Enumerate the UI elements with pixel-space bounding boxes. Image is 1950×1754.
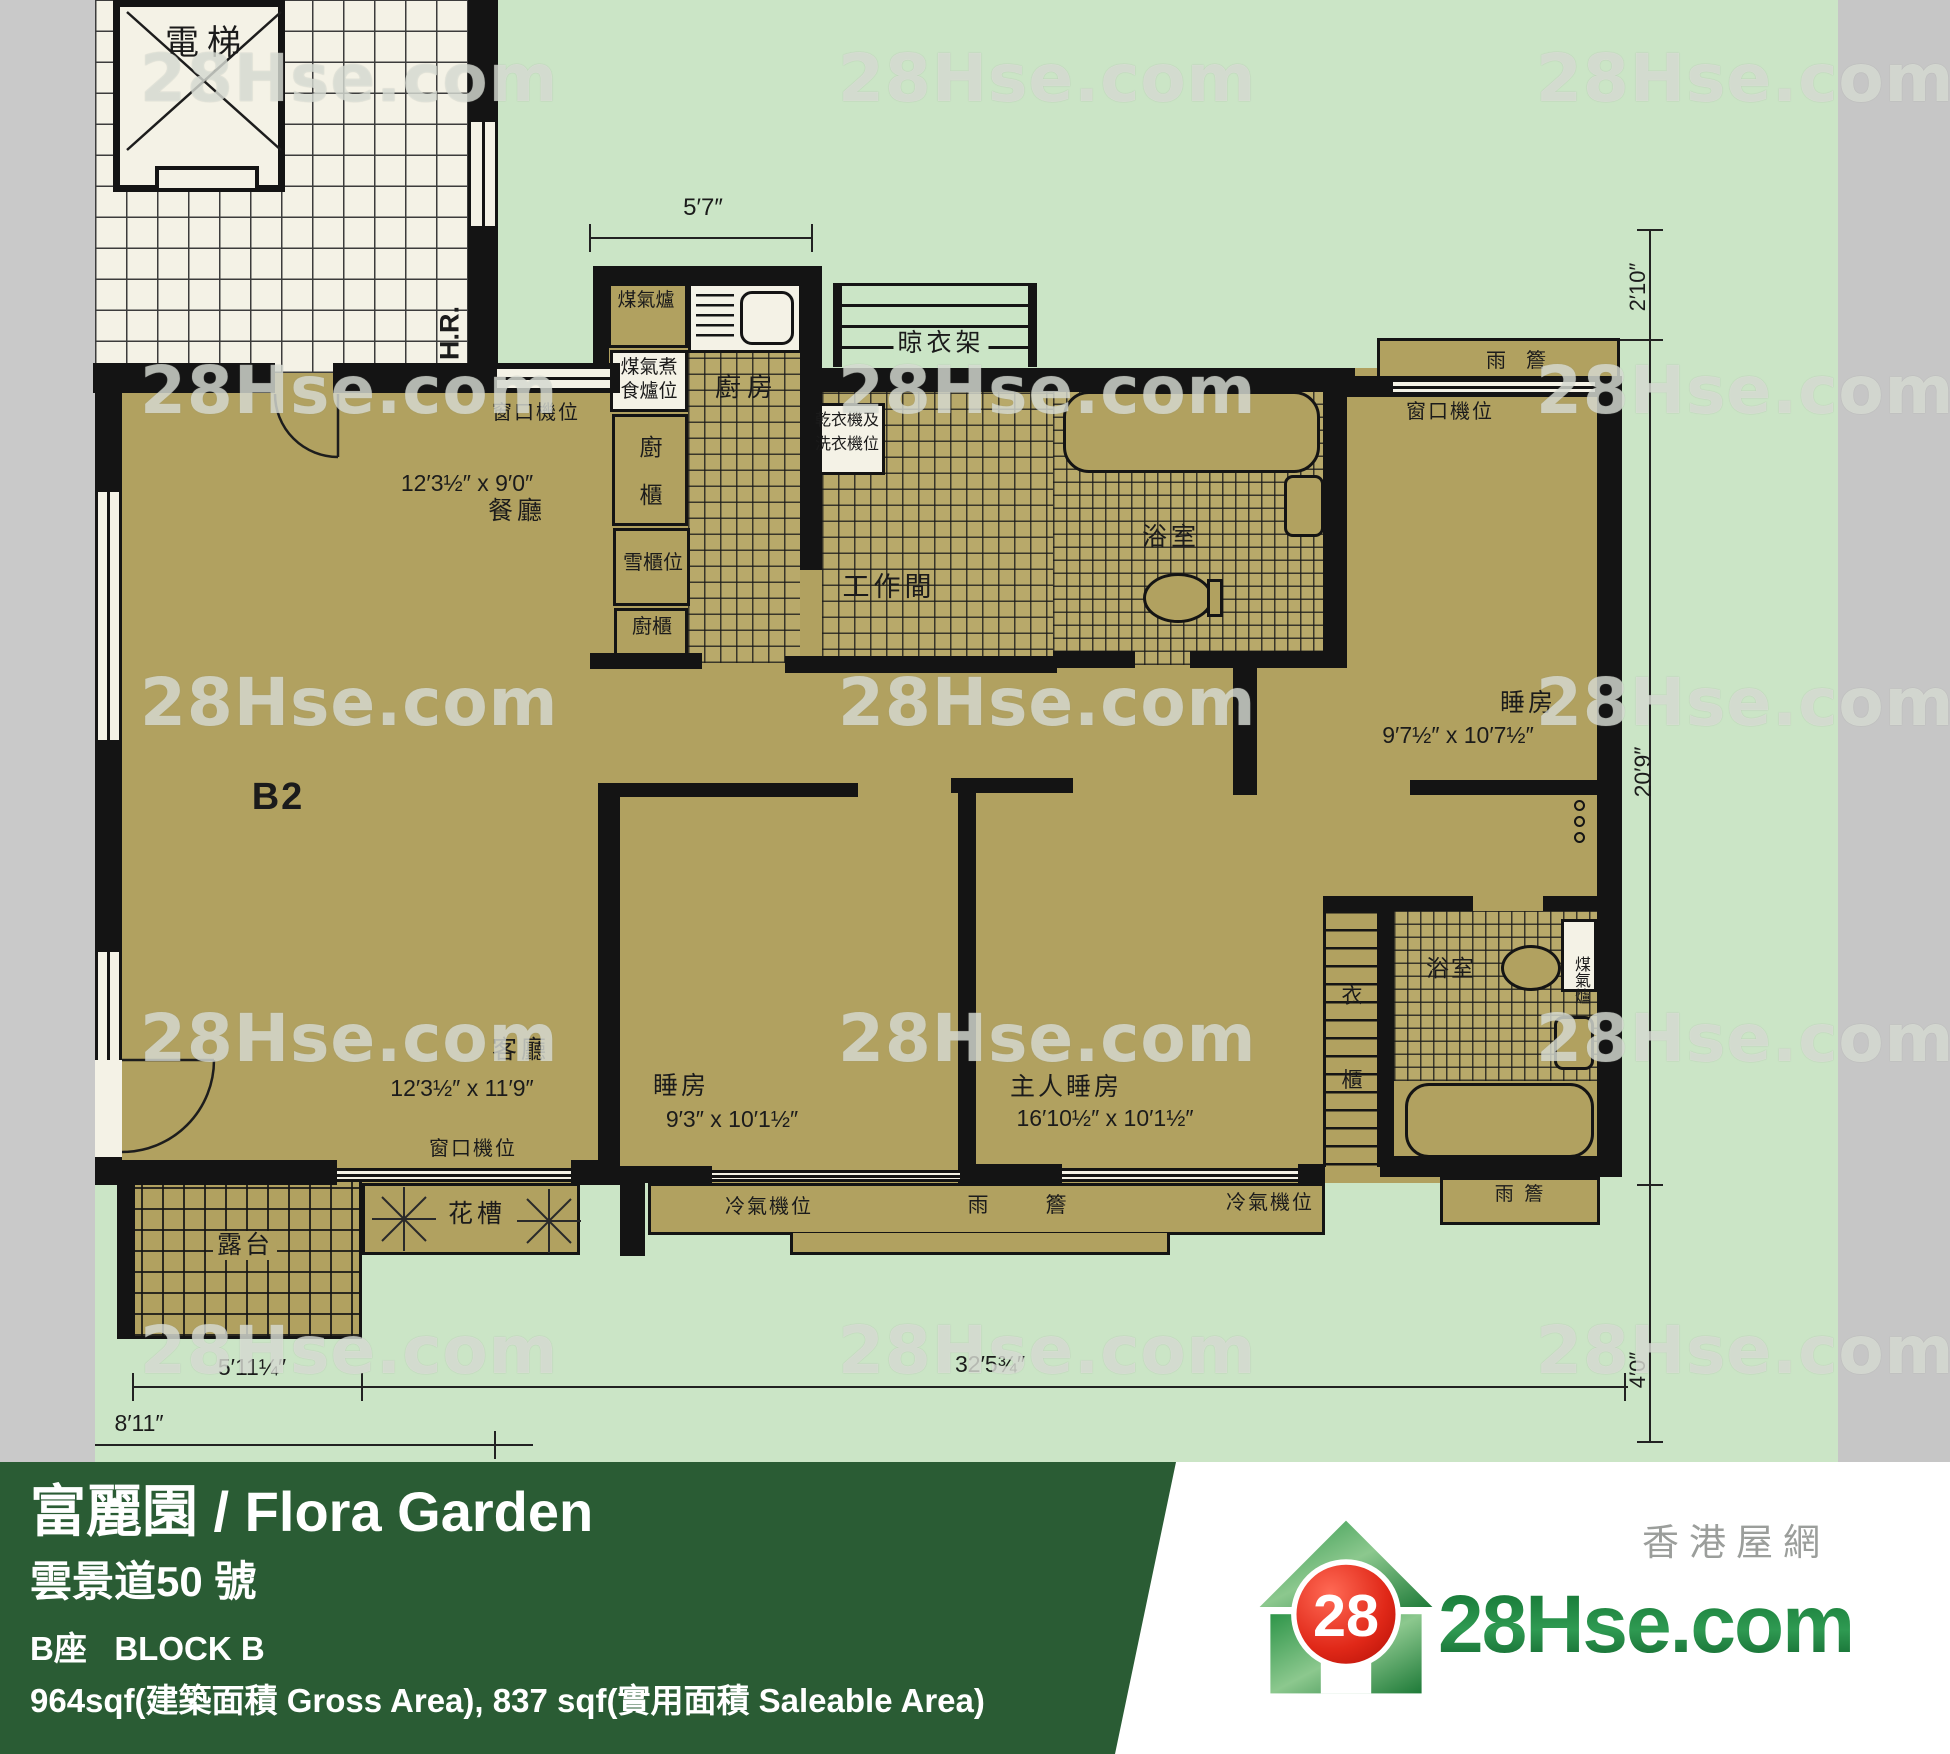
wardrobe-label-char1: 衣: [1342, 986, 1363, 1007]
bathroom2-label: 浴室: [1426, 957, 1476, 980]
gas-cooker-pos-label-line1: 煤氣煮: [620, 358, 677, 377]
plan-labels-layer: 電梯H.R.煤氣爐煤氣煮食爐位廚房廚櫃雪櫃位廚櫃晾衣架乾衣機及洗衣機位工作間浴室…: [0, 0, 1950, 1462]
window-ac-label-living: 窗口機位: [429, 1139, 517, 1159]
estate-area: 964sqf(建築面積 Gross Area), 837 sqf(實用面積 Sa…: [30, 1682, 985, 1720]
kitchen-cabinet2-label: 廚櫃: [632, 617, 672, 637]
site-logo-brand: 28Hse.com: [1438, 1578, 1853, 1672]
dryer-washer-pos-label-line2: 洗衣機位: [815, 437, 879, 453]
living-label: 客廳: [492, 1038, 550, 1063]
canopy-label-main-char2: 簷: [1046, 1195, 1067, 1216]
flower-bed-label: 花槽: [448, 1202, 506, 1227]
site-logo-house-icon: 28: [1256, 1517, 1436, 1697]
balcony-label: 露台: [213, 1231, 277, 1260]
dim-right-upper: 2′10″: [1627, 263, 1649, 312]
canopy-label-top: 雨 簷: [1486, 351, 1546, 371]
estate-title: 富麗園 / Flora Garden: [30, 1480, 593, 1544]
estate-block: B座 BLOCK B: [30, 1630, 265, 1668]
drying-rack-label: 晾衣架: [893, 329, 988, 358]
dim-right-lower: 4′0″: [1627, 1352, 1649, 1388]
floor-plan-area: 電梯H.R.煤氣爐煤氣煮食爐位廚房廚櫃雪櫃位廚櫃晾衣架乾衣機及洗衣機位工作間浴室…: [0, 0, 1950, 1462]
master-bedroom-dims-label: 16′10½″ x 10′1½″: [1016, 1107, 1193, 1130]
kitchen-label: 廚房: [715, 374, 779, 400]
window-ac-label-dining: 窗口機位: [492, 403, 580, 423]
gas-stove-label: 煤氣爐: [617, 291, 674, 310]
bathroom1-label: 浴室: [1142, 525, 1200, 550]
fridge-pos-label: 雪櫃位: [623, 553, 683, 573]
window-ac-label-bedroom1: 窗口機位: [1406, 402, 1494, 422]
dim-balcony-width: 5′11¼″: [218, 1356, 286, 1379]
unit-label: B2: [252, 778, 305, 816]
kitchen-cabinet-label-char1: 廚: [640, 436, 663, 459]
workroom-label: 工作間: [843, 574, 936, 601]
ac-pos-label-right: 冷氣機位: [1226, 1193, 1314, 1213]
dining-label: 餐廳: [488, 499, 546, 524]
wardrobe-label-char2: 櫃: [1342, 1070, 1363, 1091]
elevator-label: 電梯: [165, 26, 249, 60]
estate-address: 雲景道50 號: [30, 1558, 256, 1606]
kitchen-cabinet-label-char2: 櫃: [640, 484, 663, 507]
ac-pos-label-left: 冷氣機位: [725, 1197, 813, 1217]
logo-badge: 28: [1313, 1582, 1379, 1649]
gas-heater-label: 煤氣爐: [1572, 956, 1588, 1004]
bedroom2-dims-label: 9′3″ x 10′1½″: [666, 1108, 798, 1131]
master-bedroom-label: 主人睡房: [1010, 1075, 1122, 1100]
canopy-label-main-char1: 雨: [968, 1195, 989, 1216]
living-dims-label: 12′3½″ x 11′9″: [390, 1077, 533, 1100]
dining-dims-label: 12′3½″ x 9′0″: [401, 472, 533, 495]
bedroom1-dims-label: 9′7½″ x 10′7½″: [1382, 724, 1534, 747]
site-logo-tagline: 香港屋網: [1642, 1512, 1830, 1566]
floor-plan-page: 電梯H.R.煤氣爐煤氣煮食爐位廚房廚櫃雪櫃位廚櫃晾衣架乾衣機及洗衣機位工作間浴室…: [0, 0, 1950, 1754]
dim-right-middle: 20′9″: [1632, 747, 1655, 798]
dim-left-offset: 8′11″: [114, 1412, 163, 1435]
hose-reel-label: H.R.: [437, 306, 464, 360]
gas-cooker-pos-label-line2: 食爐位: [620, 382, 677, 401]
dim-bottom-width: 32′5¾″: [955, 1353, 1025, 1376]
dryer-washer-pos-label-line1: 乾衣機及: [815, 413, 879, 429]
canopy-label-ensuite: 雨 簷: [1495, 1185, 1544, 1204]
bedroom2-label: 睡房: [653, 1074, 709, 1099]
bedroom1-label: 睡房: [1500, 691, 1556, 716]
dim-kitchen-width: 5′7″: [683, 196, 723, 220]
